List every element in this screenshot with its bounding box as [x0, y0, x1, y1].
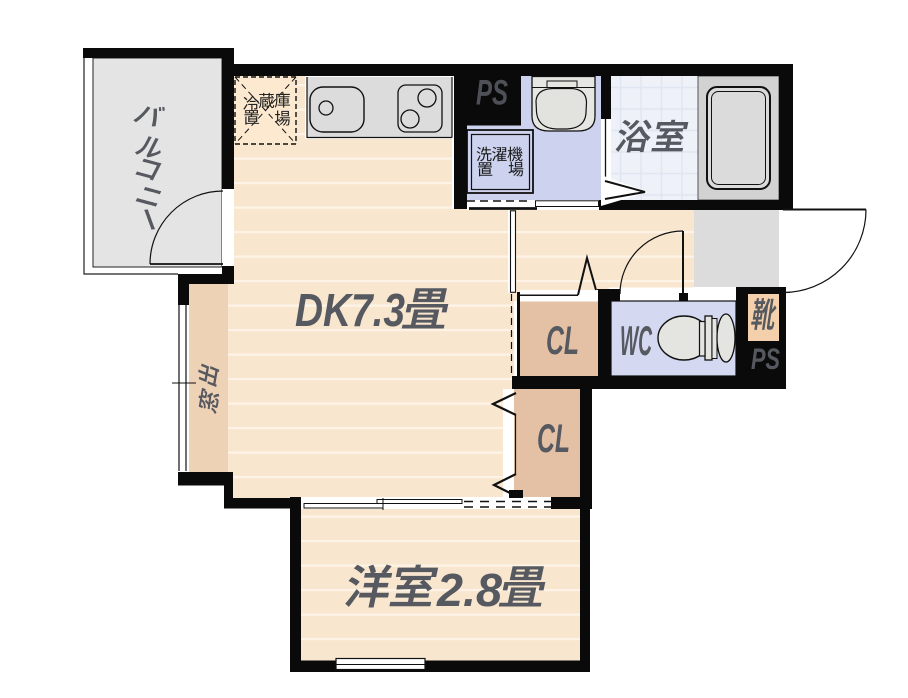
svg-text:PS: PS: [476, 74, 508, 113]
svg-text:WC: WC: [620, 317, 652, 364]
svg-text:CL: CL: [537, 417, 570, 461]
svg-text:2.8: 2.8: [436, 564, 502, 616]
svg-text:PS: PS: [751, 343, 780, 376]
svg-text:DK7.3: DK7.3: [295, 284, 405, 336]
svg-text:CL: CL: [546, 319, 579, 363]
